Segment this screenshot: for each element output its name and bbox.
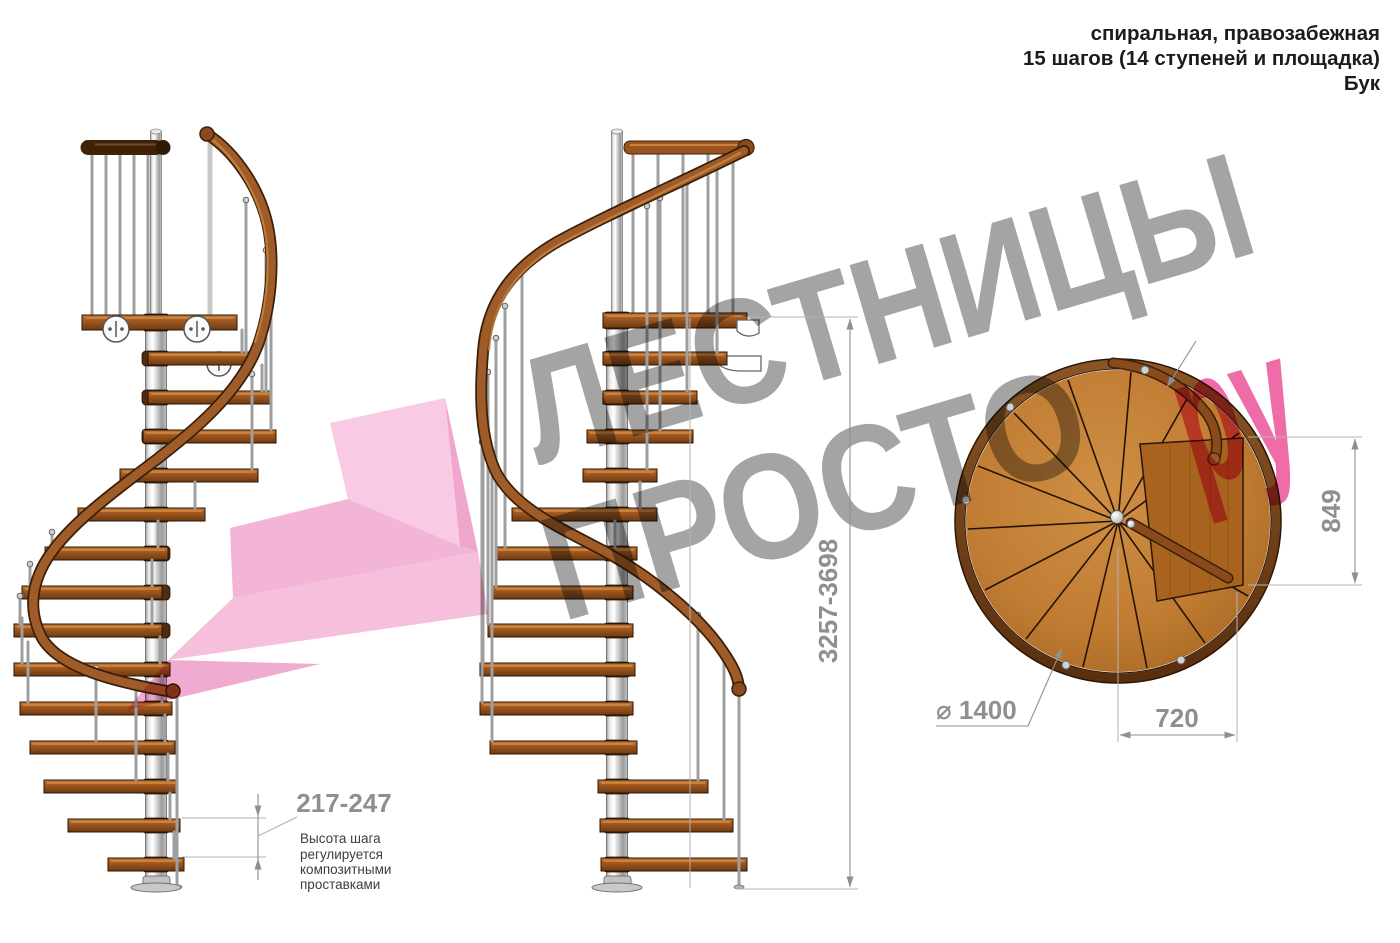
header-line-steps: 15 шагов (14 ступеней и площадка) (1023, 47, 1380, 70)
svg-text:регулируется: регулируется (300, 847, 383, 862)
staircase-drawing: ЛЕСТНИЦЫ ПРОСТО ру 3257-3698 217-247 Выс… (0, 0, 1400, 943)
step-height-label: 217-247 (296, 788, 391, 818)
drawing-header: спиральная, правозабежная 15 шагов (14 с… (1023, 22, 1381, 95)
elevation-view-left (14, 127, 276, 892)
landing-side-label: 849 (1316, 489, 1346, 532)
header-line-type: спиральная, правозабежная (1091, 22, 1380, 45)
drawing-page: ЛЕСТНИЦЫ ПРОСТО ру 3257-3698 217-247 Выс… (0, 0, 1400, 943)
svg-text:проставками: проставками (300, 877, 380, 892)
header-line-material: Бук (1344, 72, 1381, 95)
svg-text:Высота шага: Высота шага (300, 831, 381, 846)
landing-handrail-bar (624, 141, 746, 154)
landing-width-label: 720 (1155, 703, 1198, 733)
dimension-step-height: 217-247 Высота шага регулируется компози… (182, 788, 392, 892)
step-height-note: Высота шага регулируется композитными пр… (300, 831, 391, 892)
base-flange (131, 876, 182, 892)
total-height-label: 3257-3698 (813, 539, 843, 663)
landing-railing (81, 140, 211, 315)
landing-handrail-bar (84, 140, 163, 155)
diameter-label: ⌀ 1400 (936, 695, 1017, 725)
svg-text:композитными: композитными (300, 862, 391, 877)
base-flange (592, 876, 744, 892)
